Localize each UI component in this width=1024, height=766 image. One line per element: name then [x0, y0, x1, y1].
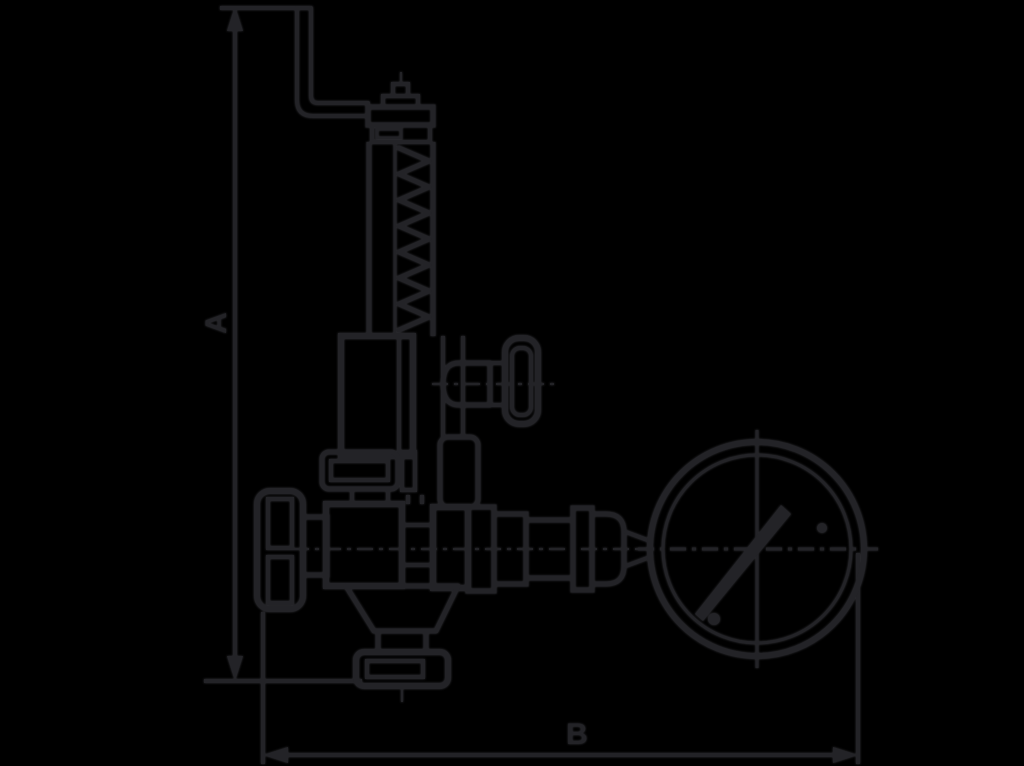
outlet-taper: [346, 586, 458, 631]
dimension-b-arrow-right-icon: [833, 747, 858, 763]
gland-nut-inner: [331, 461, 388, 480]
gauge-needle: [695, 505, 791, 621]
spring-coil: [399, 148, 429, 330]
side-wheel-rim: [505, 338, 538, 424]
bonnet-body: [341, 336, 413, 456]
bracket-outer-line: [297, 8, 368, 116]
side-wheel-inner: [512, 348, 531, 415]
dimension-a-label: A: [200, 312, 233, 334]
inlet-wheel-inner-bottom: [268, 557, 292, 603]
mounting-bracket: [297, 8, 368, 116]
spring-tube-cap: [368, 107, 433, 125]
body-front-block: [326, 504, 402, 586]
upper-outlet-boss: [440, 437, 478, 507]
valve-dimensional-drawing: A B: [0, 0, 1024, 766]
dimension-a: A: [200, 6, 362, 681]
inlet-wheel-inner-top: [268, 499, 292, 548]
drawing-canvas: A B: [0, 0, 1024, 766]
pressure-gauge: [638, 430, 878, 668]
spring-housing: [368, 72, 433, 336]
outlet-flange-inner: [367, 661, 423, 677]
dimension-b-arrow-left-icon: [263, 747, 288, 763]
dimension-a-arrow-down-icon: [227, 656, 243, 681]
dimension-b-label: B: [566, 718, 588, 751]
bottom-outlet: [346, 586, 458, 703]
bracket-inner-line: [311, 8, 368, 103]
lock-ring-inner: [377, 129, 401, 138]
side-handwheel: [432, 338, 560, 424]
body-rear-block: [433, 507, 468, 588]
gauge-screw-right: [817, 523, 827, 533]
outlet-pipe: [378, 631, 426, 652]
outlet-flange: [356, 652, 448, 686]
gauge-screw-left: [708, 613, 720, 625]
